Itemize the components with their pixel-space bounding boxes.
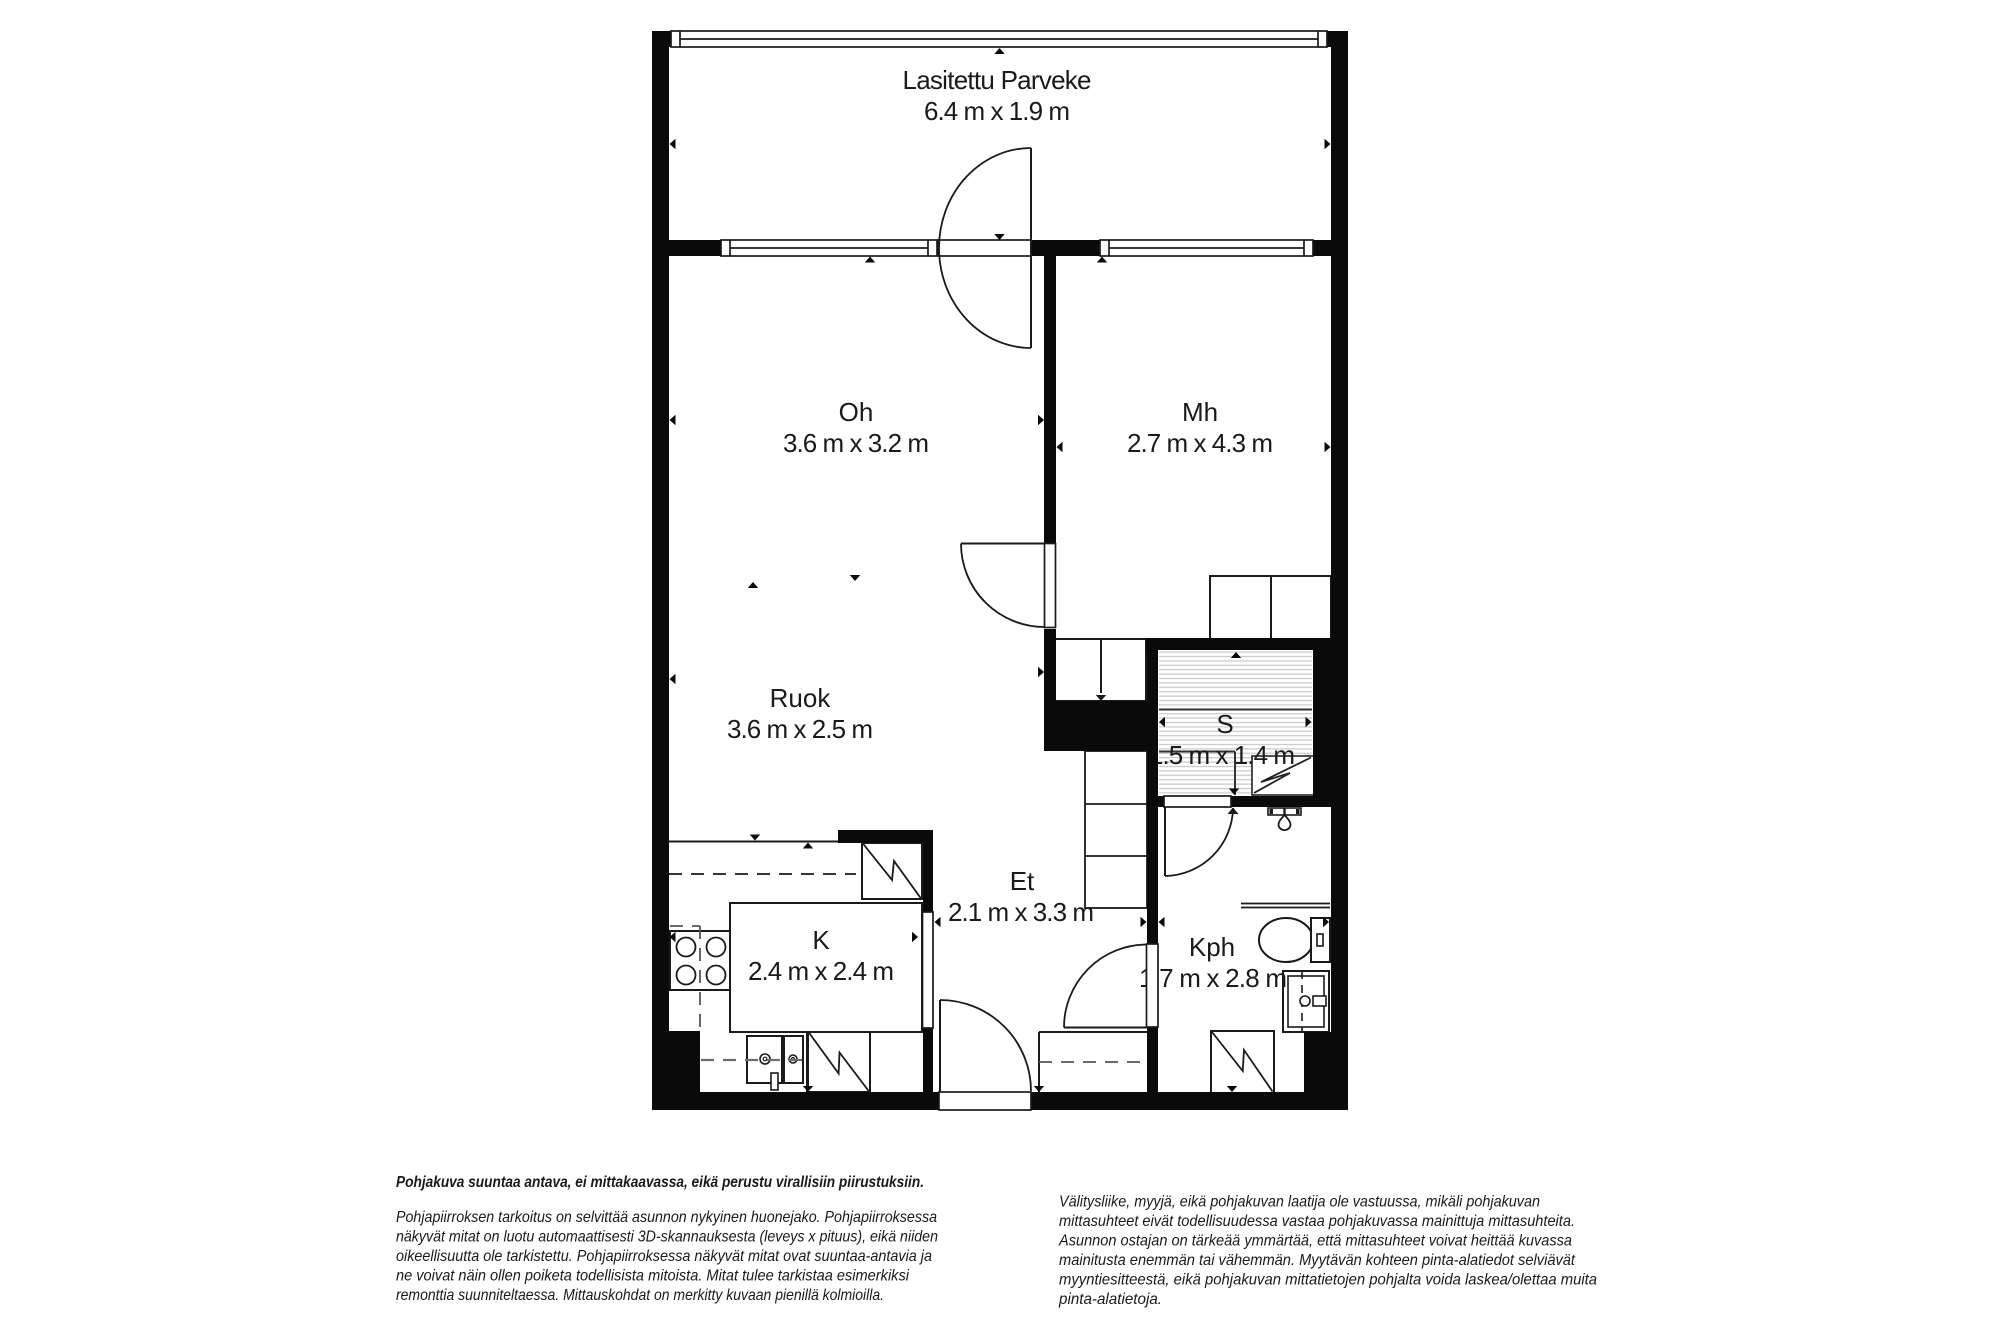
svg-text:Kph: Kph bbox=[1189, 932, 1235, 962]
svg-text:näkyvät mitat on luotu automaa: näkyvät mitat on luotu automaattisesti 3… bbox=[396, 1229, 938, 1246]
svg-text:pinta-alatietoja.: pinta-alatietoja. bbox=[1058, 1291, 1162, 1308]
svg-text:6.4 m x 1.9 m: 6.4 m x 1.9 m bbox=[924, 96, 1070, 126]
svg-text:S: S bbox=[1216, 709, 1233, 739]
svg-text:Pohjapiirroksen tarkoitus on s: Pohjapiirroksen tarkoitus on selvittää a… bbox=[396, 1209, 937, 1226]
svg-text:2.4 m x 2.4 m: 2.4 m x 2.4 m bbox=[748, 956, 894, 986]
svg-text:Asunnon ostajan on tärkeää ymm: Asunnon ostajan on tärkeää ymmärtää, ett… bbox=[1058, 1233, 1572, 1250]
svg-text:K: K bbox=[812, 925, 830, 955]
svg-text:myyntiesitteestä, eikä pohjaku: myyntiesitteestä, eikä pohjakuvan mittat… bbox=[1059, 1272, 1597, 1289]
svg-text:2.7 m x 4.3 m: 2.7 m x 4.3 m bbox=[1127, 428, 1273, 458]
svg-text:3.6 m x 3.2 m: 3.6 m x 3.2 m bbox=[783, 428, 929, 458]
svg-text:2.1 m x 3.3 m: 2.1 m x 3.3 m bbox=[948, 897, 1094, 927]
svg-text:ne voivat näin ollen poiketa t: ne voivat näin ollen poiketa todellisist… bbox=[396, 1268, 909, 1285]
svg-text:mainitusta enemmän tai vähemmä: mainitusta enemmän tai vähemmän. Myytävä… bbox=[1059, 1252, 1576, 1269]
svg-text:1.5 m x 1.4 m: 1.5 m x 1.4 m bbox=[1149, 740, 1295, 770]
svg-text:Oh: Oh bbox=[839, 397, 874, 427]
svg-text:Lasitettu Parveke: Lasitettu Parveke bbox=[903, 65, 1092, 95]
svg-text:Ruok: Ruok bbox=[770, 683, 832, 713]
svg-text:3.6 m x 2.5 m: 3.6 m x 2.5 m bbox=[727, 714, 873, 744]
svg-text:Välitysliike, myyjä, eikä pohj: Välitysliike, myyjä, eikä pohjakuvan laa… bbox=[1059, 1194, 1540, 1211]
svg-text:mittasuhteet eivät todellisuud: mittasuhteet eivät todellisuudessa vasta… bbox=[1059, 1213, 1575, 1230]
svg-text:remonttia suunniteltaessa. Mit: remonttia suunniteltaessa. Mittauskohdat… bbox=[396, 1287, 884, 1304]
svg-text:Mh: Mh bbox=[1182, 397, 1218, 427]
svg-text:1.7 m x 2.8 m: 1.7 m x 2.8 m bbox=[1139, 963, 1287, 993]
svg-text:Et: Et bbox=[1010, 866, 1035, 896]
svg-text:Pohjakuva suuntaa antava, ei m: Pohjakuva suuntaa antava, ei mittakaavas… bbox=[396, 1174, 924, 1191]
svg-text:oikeellisuutta ole tarkistettu: oikeellisuutta ole tarkistettu. Pohjapii… bbox=[396, 1248, 932, 1265]
